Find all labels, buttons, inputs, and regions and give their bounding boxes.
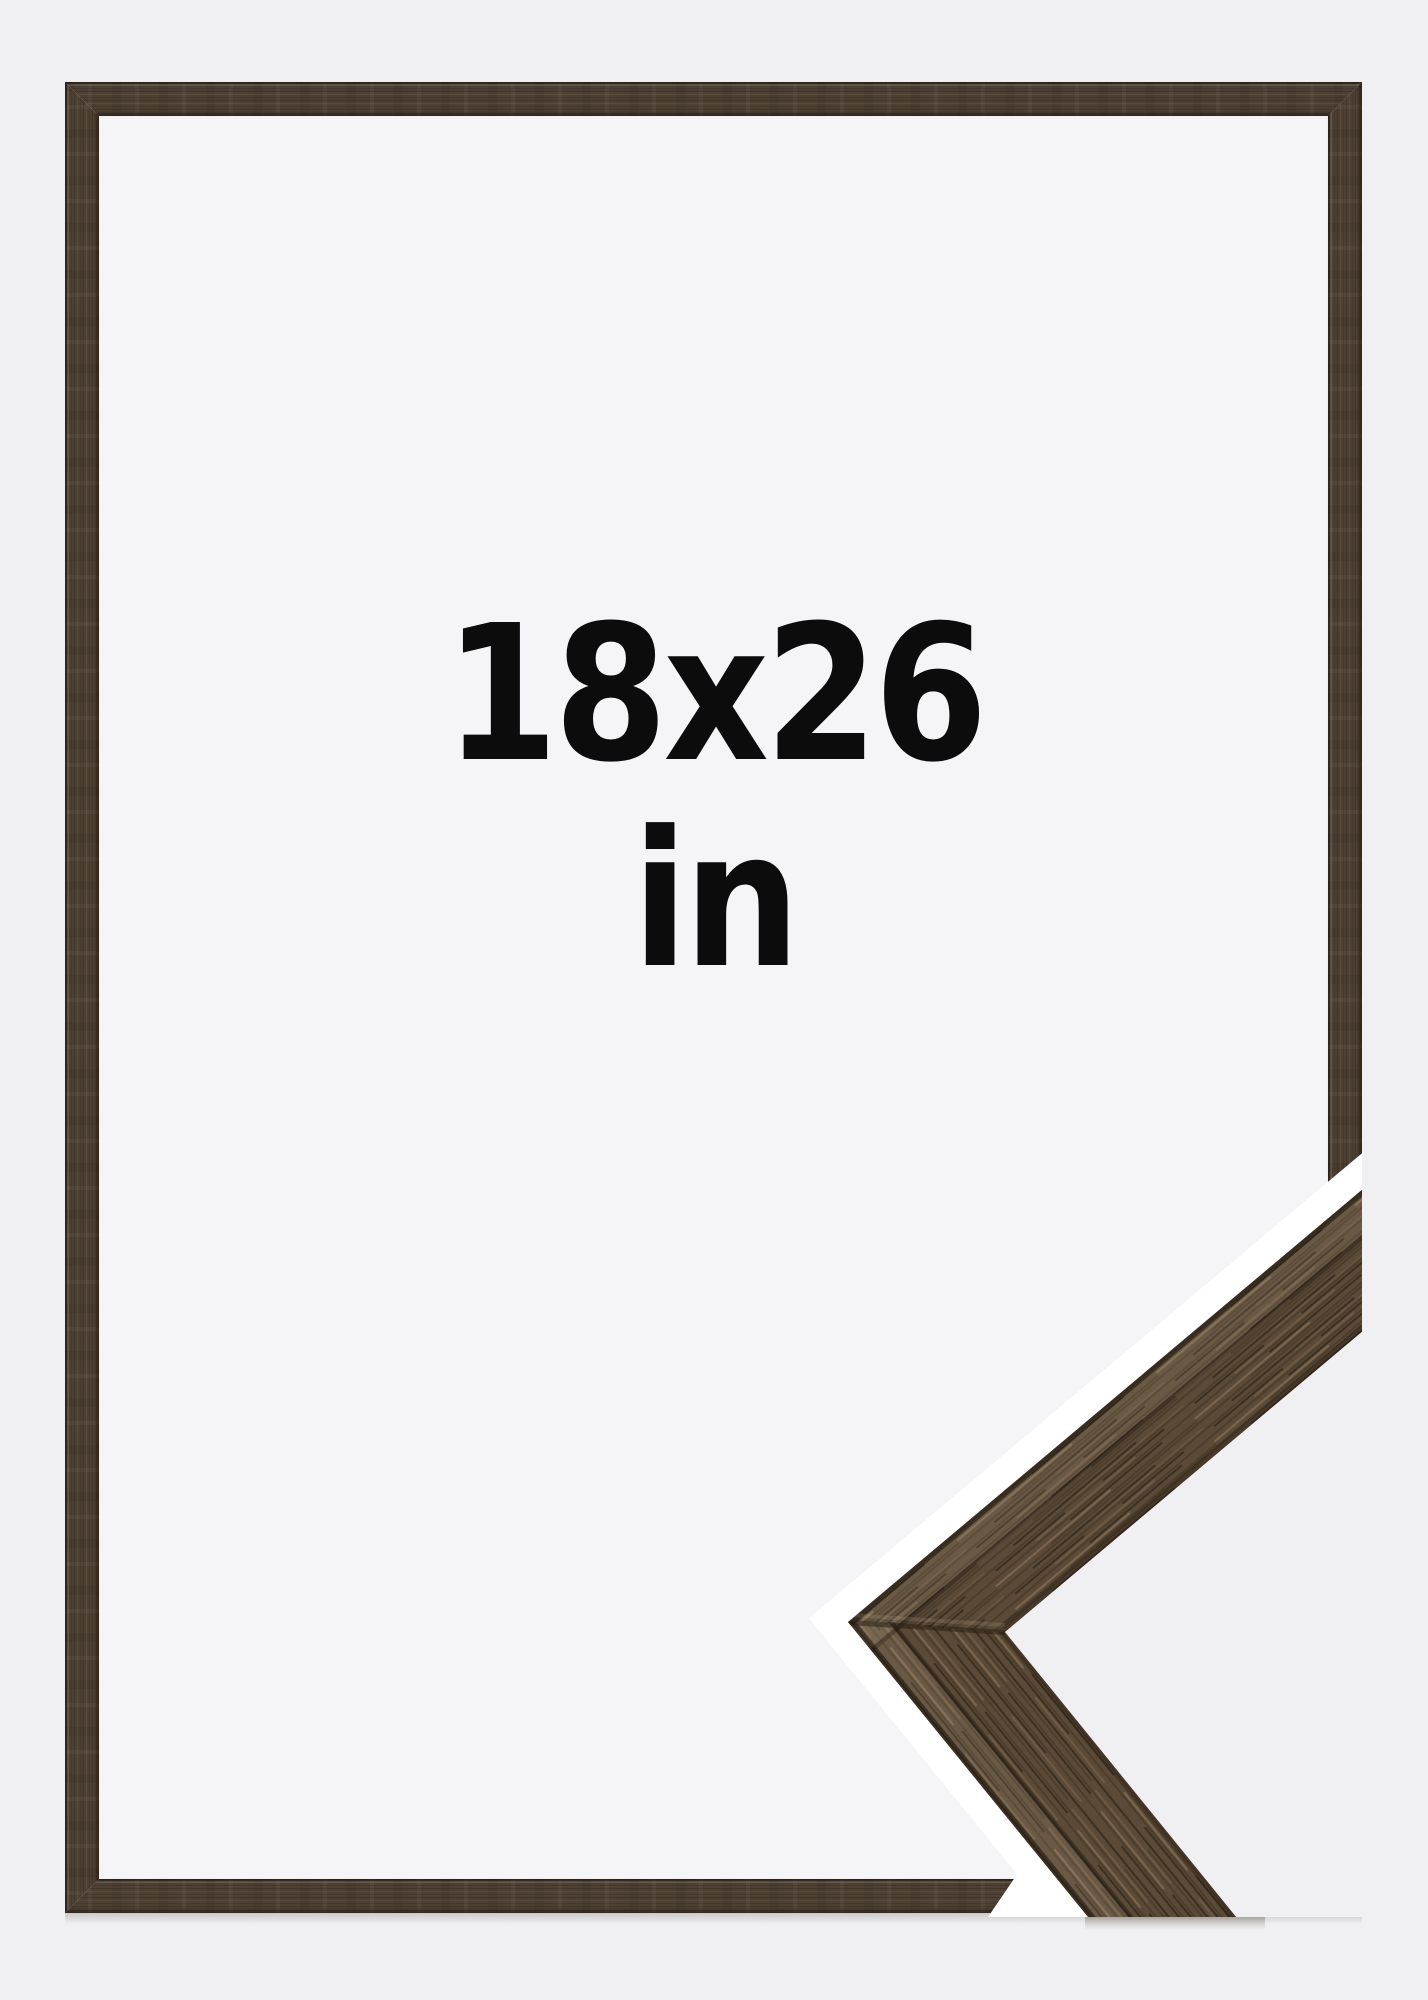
product-image: 18x26 in xyxy=(0,0,1428,2000)
corner-detail-shadow xyxy=(1085,1917,1265,1930)
frame-corner-detail xyxy=(0,0,1428,2000)
